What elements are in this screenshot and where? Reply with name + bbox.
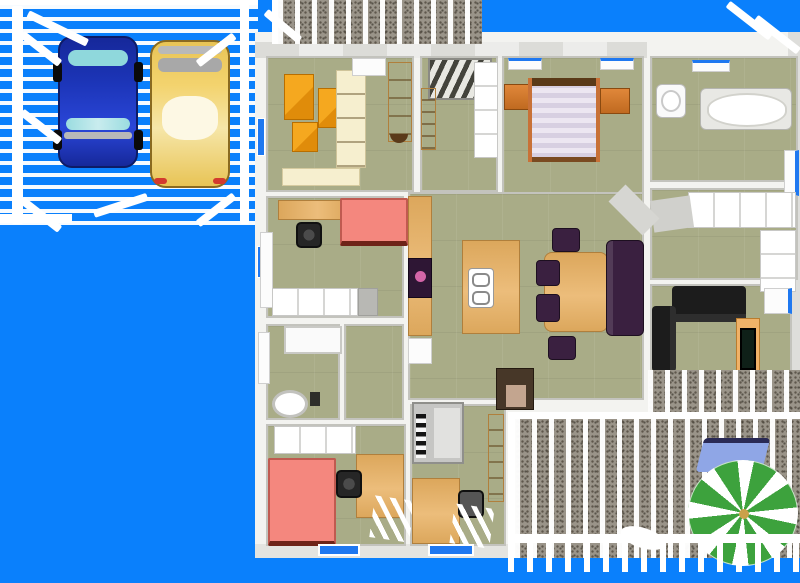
- roof-highlight: [162, 96, 218, 140]
- bathtub: [700, 88, 792, 130]
- nightstand-right: [600, 88, 630, 114]
- taillight: [213, 178, 226, 184]
- toilet-round: [272, 390, 308, 418]
- bottom-window: [428, 544, 474, 556]
- dining-chair: [548, 336, 576, 360]
- railing-balusters: [508, 543, 800, 572]
- cooktop-burner: [415, 271, 426, 282]
- sink-basin: [472, 291, 490, 305]
- cabinet-orange: [292, 122, 318, 152]
- closet-row: [272, 288, 358, 316]
- wardrobe-cream: [336, 70, 366, 168]
- wood-stove: [496, 368, 534, 410]
- pergola-post: [240, 2, 249, 224]
- windshield: [68, 50, 128, 66]
- right-window: [784, 150, 799, 196]
- cooktop: [408, 258, 432, 298]
- television: [740, 328, 756, 370]
- toilet-tank: [310, 392, 320, 406]
- room-hallway: [344, 324, 404, 420]
- sink-basin: [472, 273, 490, 287]
- dining-bench-sofa: [606, 240, 644, 336]
- folding-ladder: [369, 495, 414, 542]
- pergola-bottom-beam: [0, 214, 72, 223]
- blue-car: [58, 36, 138, 168]
- office-chair: [296, 222, 322, 248]
- deck-railing: [508, 534, 800, 572]
- footboard: [532, 157, 596, 162]
- bed-salmon: [340, 198, 408, 246]
- deck-corner: [648, 370, 800, 416]
- upright-piano: [412, 402, 464, 464]
- piano-keys: [416, 414, 426, 458]
- window-sill: [508, 58, 542, 70]
- railing-beam: [508, 534, 800, 543]
- floorplan-3d-viewport[interactable]: [0, 0, 800, 583]
- double-bed: [528, 78, 600, 162]
- headboard: [532, 78, 596, 86]
- closet-row: [688, 192, 796, 228]
- wheel: [134, 62, 143, 82]
- sofa-black-short: [652, 306, 676, 372]
- wall-shelf-wood: [421, 88, 436, 150]
- window-sill: [600, 58, 634, 70]
- shower-tub: [284, 326, 342, 354]
- wheel: [134, 130, 143, 150]
- bookshelf-wood: [488, 414, 504, 502]
- yellow-car: [150, 40, 230, 188]
- shelf-cream: [282, 168, 360, 186]
- windshield: [158, 58, 222, 72]
- dining-chair: [552, 228, 580, 252]
- carport: [0, 0, 258, 228]
- window: [764, 288, 792, 314]
- toilet-bowl: [661, 90, 681, 112]
- sofa-black-long: [672, 286, 746, 322]
- bumper: [64, 132, 132, 139]
- taillight: [154, 178, 167, 184]
- closet-cells: [474, 62, 498, 158]
- top-deck: [272, 0, 482, 44]
- wall-shelf: [258, 332, 270, 384]
- dresser-wood: [388, 62, 412, 142]
- double-sink: [468, 268, 494, 308]
- nightstand-left: [504, 84, 530, 110]
- closet-end-gray: [358, 288, 378, 316]
- window-sill: [692, 60, 730, 72]
- closet-column: [760, 230, 796, 292]
- office-chair: [336, 470, 362, 498]
- white-box: [352, 58, 386, 76]
- cabinet-orange: [284, 74, 314, 120]
- tub-basin: [707, 93, 787, 127]
- counter-cabinet: [408, 338, 432, 364]
- umbrella-hub: [739, 509, 749, 519]
- closet-row: [274, 426, 356, 454]
- piano-lid: [434, 408, 460, 458]
- bed-salmon: [268, 458, 336, 546]
- folding-ladder: [449, 503, 494, 548]
- side-window: [257, 118, 265, 156]
- bottom-window: [318, 544, 360, 556]
- angled-wall: [650, 195, 694, 232]
- toilet: [656, 84, 686, 118]
- stove-door: [506, 385, 526, 407]
- rear-window: [66, 118, 130, 130]
- dining-chair: [536, 260, 560, 286]
- dining-chair: [536, 294, 560, 322]
